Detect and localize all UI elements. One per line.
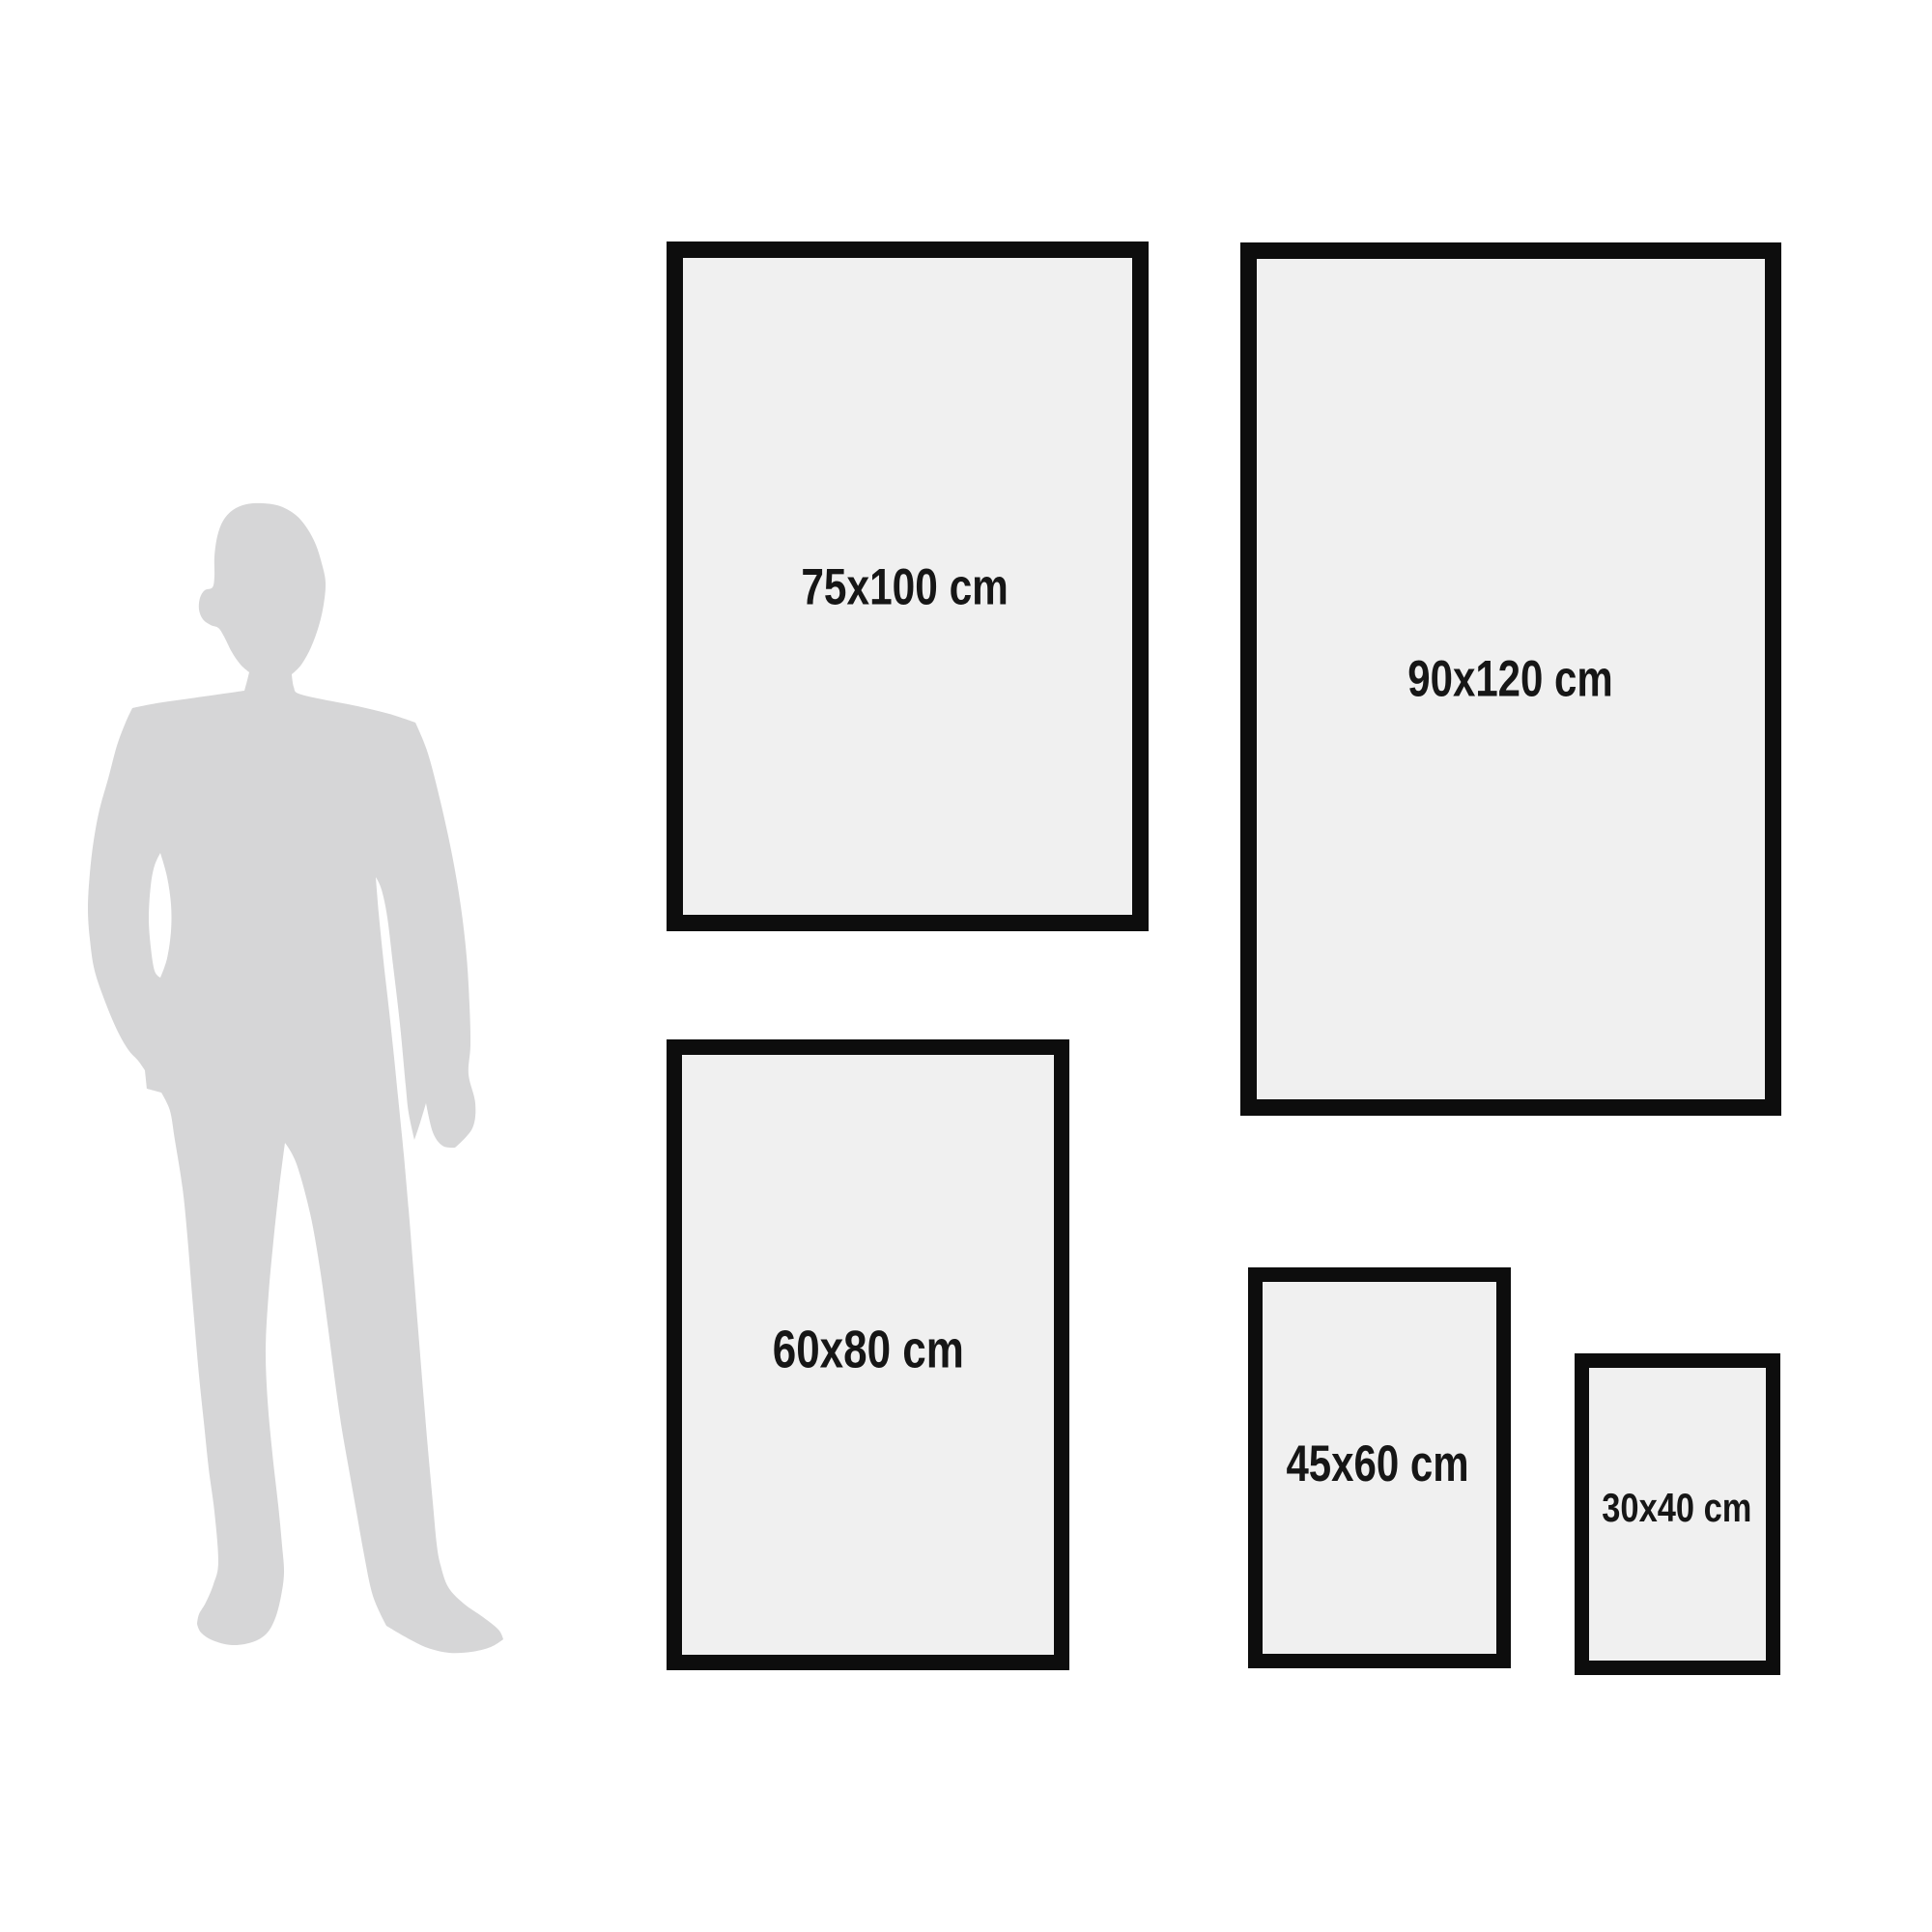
svg-text:45x60 cm: 45x60 cm	[1286, 1436, 1468, 1493]
svg-text:90x120 cm: 90x120 cm	[1407, 651, 1612, 708]
svg-text:60x80 cm: 60x80 cm	[773, 1320, 964, 1379]
svg-text:30x40 cm: 30x40 cm	[1602, 1486, 1751, 1531]
svg-text:75x100 cm: 75x100 cm	[801, 559, 1009, 616]
